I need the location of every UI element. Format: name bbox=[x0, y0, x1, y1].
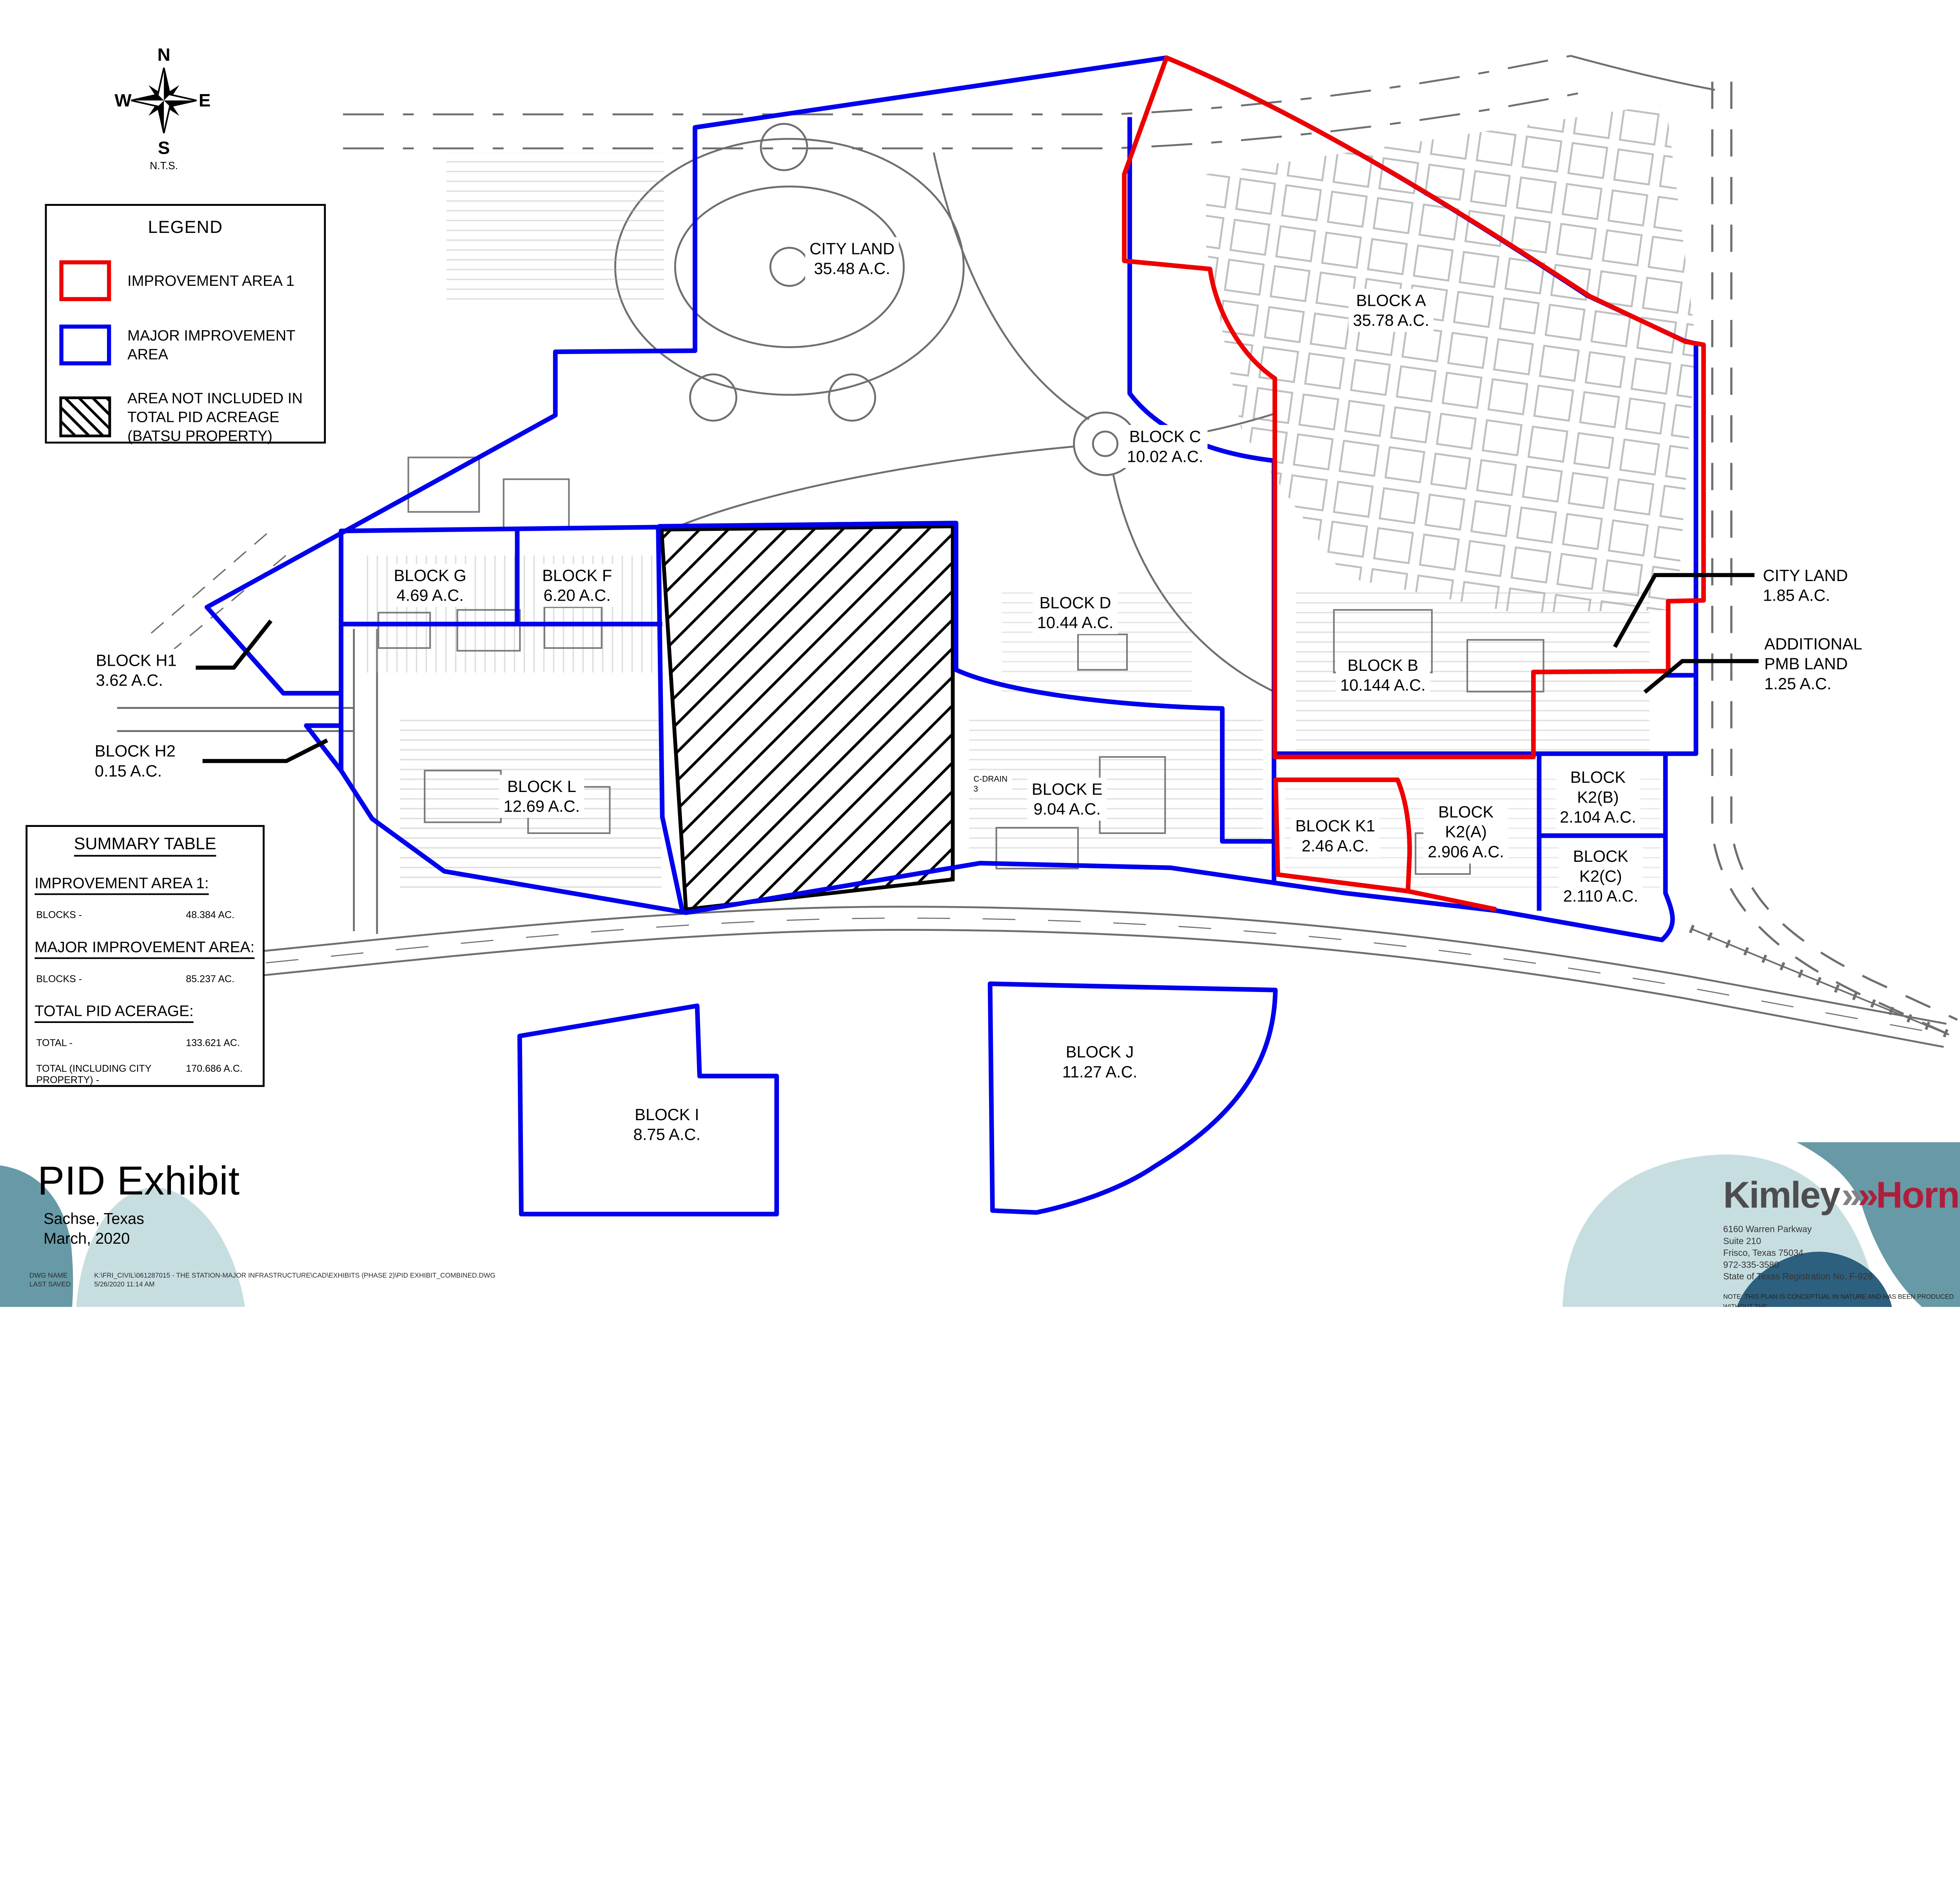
legend-item-improvement-area-1: IMPROVEMENT AREA 1 bbox=[59, 260, 311, 301]
block-g-label: BLOCK G4.69 A.C. bbox=[389, 564, 470, 607]
block-i-label: BLOCK I8.75 A.C. bbox=[629, 1103, 705, 1146]
hatch-swatch bbox=[59, 396, 111, 437]
chevron-icon: » bbox=[1858, 1174, 1877, 1215]
firm-block: Kimley»»Horn 6160 Warren Parkway Suite 2… bbox=[1723, 1174, 1960, 1307]
summary-row-label: BLOCKS - bbox=[36, 909, 82, 921]
summary-row-label: TOTAL - bbox=[36, 1037, 73, 1048]
block-e-label: BLOCK E9.04 A.C. bbox=[1027, 778, 1107, 821]
block-a-label: BLOCK A35.78 A.C. bbox=[1348, 289, 1434, 332]
sheet-location: Sachse, Texas bbox=[44, 1209, 144, 1229]
compass-nts-label: N.T.S. bbox=[150, 160, 178, 171]
note-line: NOTE: THIS PLAN IS CONCEPTUAL IN NATURE … bbox=[1723, 1292, 1960, 1307]
file-info: DWG NAME K:\FRI_CIVIL\061287015 - THE ST… bbox=[29, 1271, 495, 1289]
block-f-label: BLOCK F6.20 A.C. bbox=[538, 564, 617, 607]
summary-row: BLOCKS - 85.237 AC. bbox=[34, 973, 256, 985]
site-plan-map: N S E W N.T.S. bbox=[0, 0, 1960, 1307]
block-c-label: BLOCK C10.02 A.C. bbox=[1123, 425, 1208, 468]
last-saved-label: LAST SAVED bbox=[29, 1280, 94, 1289]
summary-row: BLOCKS - 48.384 AC. bbox=[34, 909, 256, 921]
compass-south-label: S bbox=[158, 138, 170, 158]
city-land-park-label: CITY LAND35.48 A.C. bbox=[805, 237, 899, 280]
address-line: Frisco, Texas 75034 bbox=[1723, 1247, 1960, 1259]
conceptual-note: NOTE: THIS PLAN IS CONCEPTUAL IN NATURE … bbox=[1723, 1292, 1960, 1307]
additional-pmb-land-label: ADDITIONALPMB LAND1.25 A.C. bbox=[1760, 632, 1867, 696]
legend-item-label: MAJOR IMPROVEMENT AREA bbox=[127, 326, 311, 363]
summary-section-heading: TOTAL PID ACERAGE: bbox=[34, 1002, 256, 1023]
block-l-label: BLOCK L12.69 A.C. bbox=[499, 775, 584, 818]
summary-row-value: 133.621 AC. bbox=[186, 1037, 254, 1048]
legend-item-major-improvement-area: MAJOR IMPROVEMENT AREA bbox=[59, 325, 311, 365]
firm-address: 6160 Warren Parkway Suite 210 Frisco, Te… bbox=[1723, 1223, 1960, 1282]
sheet-date: March, 2020 bbox=[44, 1229, 144, 1249]
address-line: 6160 Warren Parkway bbox=[1723, 1223, 1960, 1235]
block-h2-label: BLOCK H20.15 A.C. bbox=[91, 739, 180, 783]
sheet-title: PID Exhibit bbox=[38, 1158, 240, 1204]
summary-row-label: BLOCKS - bbox=[36, 973, 82, 985]
legend-item-area-not-included: AREA NOT INCLUDED IN TOTAL PID ACREAGE (… bbox=[59, 389, 311, 445]
block-b-label: BLOCK B10.144 A.C. bbox=[1336, 654, 1430, 697]
batsu-hatched-area bbox=[661, 526, 953, 909]
compass-rose-icon: N S E W N.T.S. bbox=[114, 45, 211, 171]
kimley-horn-logo: Kimley»»Horn bbox=[1723, 1174, 1960, 1216]
blue-outline-swatch bbox=[59, 325, 111, 365]
address-line: Suite 210 bbox=[1723, 1235, 1960, 1247]
compass-north-label: N bbox=[158, 45, 171, 65]
red-outline-swatch bbox=[59, 260, 111, 301]
sheet-subtitle: Sachse, Texas March, 2020 bbox=[44, 1209, 144, 1248]
summary-table-title: SUMMARY TABLE bbox=[34, 834, 256, 857]
block-k2b-label: BLOCKK2(B)2.104 A.C. bbox=[1555, 766, 1641, 829]
dwg-name-value: K:\FRI_CIVIL\061287015 - THE STATION-MAJ… bbox=[94, 1271, 495, 1280]
block-k1-label: BLOCK K12.46 A.C. bbox=[1291, 814, 1379, 857]
summary-row-label: TOTAL (INCLUDING CITY PROPERTY) - bbox=[36, 1063, 186, 1085]
dwg-name-label: DWG NAME bbox=[29, 1271, 94, 1280]
legend-box: LEGEND IMPROVEMENT AREA 1 MAJOR IMPROVEM… bbox=[45, 204, 326, 443]
last-saved-value: 5/26/2020 11:14 AM bbox=[94, 1280, 154, 1289]
block-k2a-label: BLOCKK2(A)2.906 A.C. bbox=[1423, 800, 1508, 863]
legend-title: LEGEND bbox=[59, 217, 311, 237]
summary-table-box: SUMMARY TABLE IMPROVEMENT AREA 1: BLOCKS… bbox=[25, 825, 265, 1087]
compass-east-label: E bbox=[199, 91, 211, 111]
summary-row-value: 85.237 AC. bbox=[186, 973, 254, 985]
block-h1-label: BLOCK H13.62 A.C. bbox=[91, 649, 181, 692]
summary-row-value: 170.686 A.C. bbox=[186, 1063, 254, 1085]
city-land-east-label: CITY LAND1.85 A.C. bbox=[1759, 564, 1852, 607]
summary-section-heading: IMPROVEMENT AREA 1: bbox=[34, 874, 256, 895]
pid-exhibit-sheet: N S E W N.T.S. CITY LAND35.48 A.C.BLOCK … bbox=[0, 0, 1960, 1307]
block-d-label: BLOCK D10.44 A.C. bbox=[1033, 591, 1118, 634]
block-k2c-label: BLOCKK2(C)2.110 A.C. bbox=[1559, 845, 1642, 908]
legend-item-label: AREA NOT INCLUDED IN TOTAL PID ACREAGE (… bbox=[127, 389, 311, 445]
address-line: State of Texas Registration No. F-928 bbox=[1723, 1270, 1960, 1282]
c-drain-label: C-DRAIN3 bbox=[969, 772, 1012, 796]
summary-row: TOTAL (INCLUDING CITY PROPERTY) - 170.68… bbox=[34, 1063, 256, 1085]
compass-west-label: W bbox=[114, 91, 132, 111]
address-line: 972-335-3580 bbox=[1723, 1259, 1960, 1270]
block-j-label: BLOCK J11.27 A.C. bbox=[1058, 1040, 1142, 1083]
summary-section-heading: MAJOR IMPROVEMENT AREA: bbox=[34, 938, 256, 959]
summary-row-value: 48.384 AC. bbox=[186, 909, 254, 921]
legend-item-label: IMPROVEMENT AREA 1 bbox=[127, 271, 294, 290]
summary-row: TOTAL - 133.621 AC. bbox=[34, 1037, 256, 1048]
